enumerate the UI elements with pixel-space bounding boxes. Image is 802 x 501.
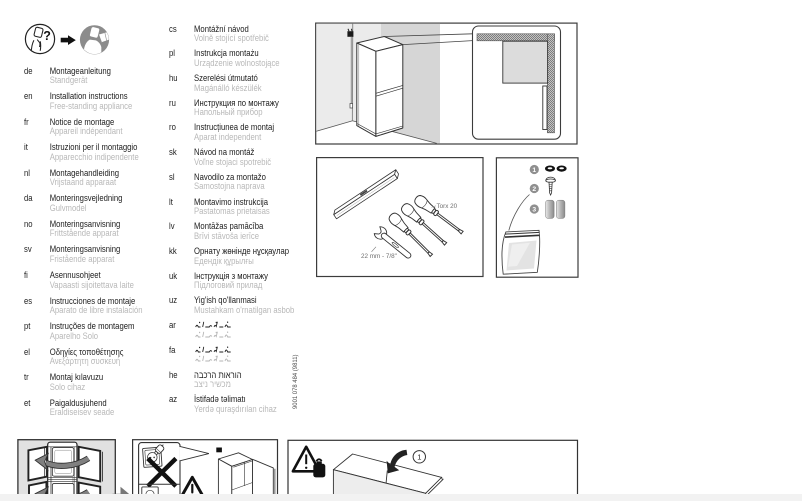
svg-text:?: ? — [43, 29, 51, 43]
svg-text:1: 1 — [532, 167, 536, 174]
svg-text:Torx 20: Torx 20 — [437, 203, 458, 210]
svg-text:1: 1 — [417, 453, 421, 462]
svg-text:3: 3 — [532, 207, 536, 214]
svg-text:2: 2 — [532, 186, 536, 193]
svg-text:22 mm - 7/8": 22 mm - 7/8" — [361, 253, 397, 260]
